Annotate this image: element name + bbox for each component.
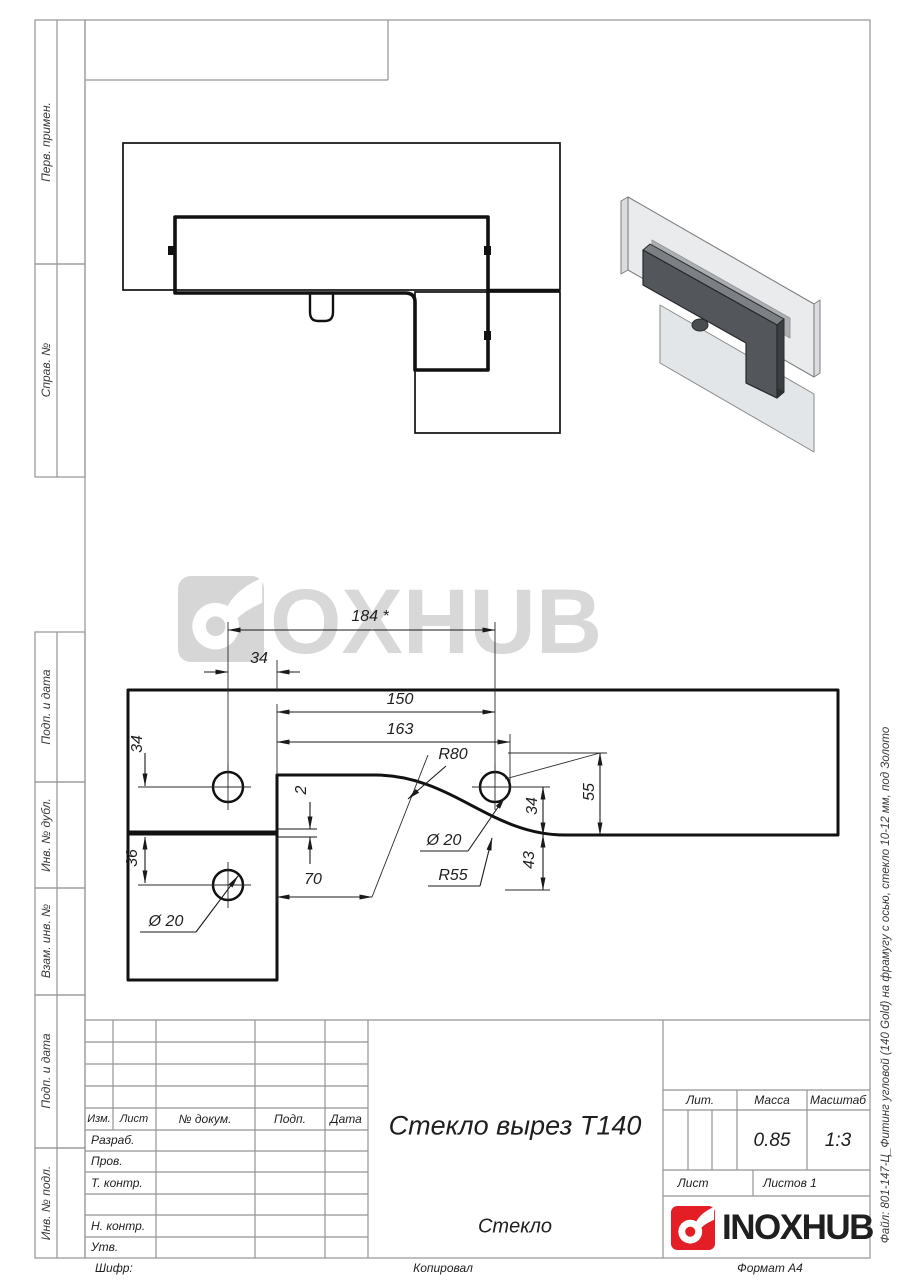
dim-gap-2: 2 — [293, 786, 311, 795]
margin-label-podp1: Подп. и дата — [39, 669, 53, 744]
dim-43: 43 — [521, 851, 539, 869]
row-nkontr: Н. контр. — [91, 1219, 145, 1233]
col-data: Дата — [330, 1112, 362, 1126]
col-podp: Подп. — [274, 1112, 306, 1126]
row-utv: Утв. — [91, 1240, 118, 1254]
drawing-sheet: INOXHUB — [0, 0, 905, 1280]
top-view — [123, 143, 560, 433]
mass-value: 0.85 — [754, 1130, 791, 1152]
code-label: Шифр: — [95, 1261, 133, 1275]
dim-34-left: 34 — [129, 735, 147, 753]
brand-name: INOXHUB — [722, 1208, 873, 1248]
inoxhub-logo-icon — [671, 1206, 715, 1250]
dim-34-offset: 34 — [250, 650, 268, 668]
col-izm: Изм. — [87, 1113, 110, 1125]
margin-label-perv: Перв. примен. — [39, 102, 53, 182]
material: Стекло — [478, 1216, 552, 1239]
part-title: Стекло вырез Т140 — [389, 1111, 642, 1142]
margin-label-vzam: Взам. инв. № — [39, 904, 53, 978]
scale-value: 1:3 — [825, 1130, 851, 1152]
row-prov: Пров. — [91, 1154, 123, 1168]
dim-r55: R55 — [438, 867, 467, 885]
row-razrab: Разраб. — [91, 1133, 134, 1147]
lit-label: Лит. — [686, 1093, 714, 1107]
margin-label-inv-podl: Инв. № подл. — [39, 1166, 53, 1240]
iso-view — [621, 197, 820, 452]
dim-163: 163 — [387, 721, 414, 739]
dim-150: 150 — [387, 691, 414, 709]
col-docnum: № докум. — [179, 1112, 232, 1126]
format-label: Формат А4 — [737, 1261, 803, 1275]
front-view — [128, 622, 838, 980]
sheet-label: Лист — [678, 1176, 709, 1190]
dim-55: 55 — [581, 783, 599, 801]
scale-label: Масштаб — [810, 1093, 866, 1107]
dim-34-right: 34 — [524, 797, 542, 815]
dim-dia20-left: Ø 20 — [149, 913, 184, 931]
margin-label-podp2: Подп. и дата — [39, 1033, 53, 1108]
margin-label-inv-dubl: Инв. № дубл. — [39, 798, 53, 872]
dim-36: 36 — [124, 849, 142, 867]
file-note: Файл: 801-147-Ц_Фитинг угловой (140 Gold… — [880, 727, 892, 1244]
margin-label-sprav: Справ. № — [39, 343, 53, 398]
dim-total-184: 184 * — [351, 608, 388, 626]
dim-dia20-right: Ø 20 — [427, 832, 462, 850]
sheets-label: Листов 1 — [763, 1176, 817, 1190]
dim-r80: R80 — [438, 746, 467, 764]
row-tkontr: Т. контр. — [91, 1176, 143, 1190]
sheet-frame — [35, 20, 870, 1258]
col-list: Лист — [120, 1113, 148, 1125]
copied-label: Копировал — [413, 1261, 473, 1275]
mass-label: Масса — [754, 1093, 789, 1107]
dim-70: 70 — [304, 871, 322, 889]
drawing-canvas — [0, 0, 905, 1280]
